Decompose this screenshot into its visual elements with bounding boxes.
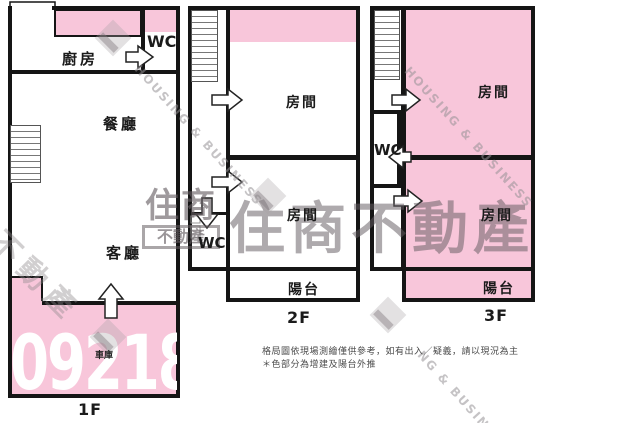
floor-label-3f: 3F [484,306,508,325]
room-top-2f-label: 房間 [286,92,318,112]
disclaimer-line-1: 格局圖依現場測繪僅供參考，如有出入／疑義，請以現況為主 [262,344,519,357]
balcony-3f-label: 陽台 [483,278,515,298]
balcony-wall [226,271,230,302]
staircase-2f [191,10,218,82]
kitchen-label: 廚房 [62,48,98,69]
room-bottom-3f-label: 房間 [481,205,513,225]
wc-3f-label: WC [374,141,402,159]
dining-label: 餐廳 [103,113,139,134]
room-divider-2f [230,155,356,160]
kitchen-divider-wall [8,70,180,74]
balcony-wall [531,271,535,302]
balcony-2f-label: 陽台 [288,279,320,299]
wall [531,6,535,271]
room-divider-3f [404,155,531,160]
wc-1f-label: WC [147,32,176,51]
wall [188,267,360,271]
room-top-2f-closet [230,10,356,42]
staircase-3f [374,10,400,80]
living-label: 客廳 [106,242,142,263]
disclaimer-line-2: ＊色部分為增建及陽台外推 [262,357,376,370]
balcony-wall [402,298,535,302]
wc-2f-label: WC [198,234,226,252]
floorplan-page: 09218 住商不動產 住商 不動產 HOUSING & BUSINESS HO… [0,0,640,423]
wc-1f-fill [145,10,176,32]
staircase-1f [10,125,41,183]
wall [370,267,535,271]
corridor-wall-2f [226,6,230,271]
room-top-3f-label: 房間 [478,82,510,102]
floor-label-1f: 1F [78,400,102,419]
balcony-wall [356,271,360,302]
balcony-wall [402,271,406,302]
room-top-3f-fill [406,10,531,157]
room-bottom-2f-label: 房間 [287,205,319,225]
wall [356,6,360,271]
kitchen-counter [55,10,141,36]
garage-label: 車庫 [95,348,113,361]
floor-label-2f: 2F [287,308,311,327]
top-notch-wall [10,2,55,8]
wall [52,6,180,10]
